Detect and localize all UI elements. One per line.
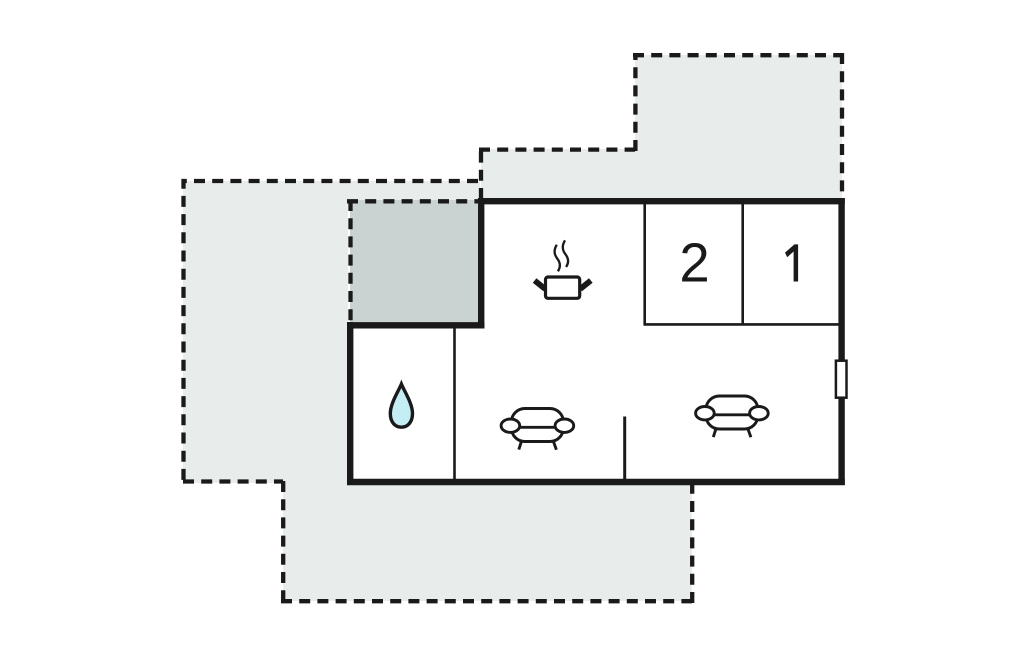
svg-text:2: 2 [679, 233, 709, 294]
